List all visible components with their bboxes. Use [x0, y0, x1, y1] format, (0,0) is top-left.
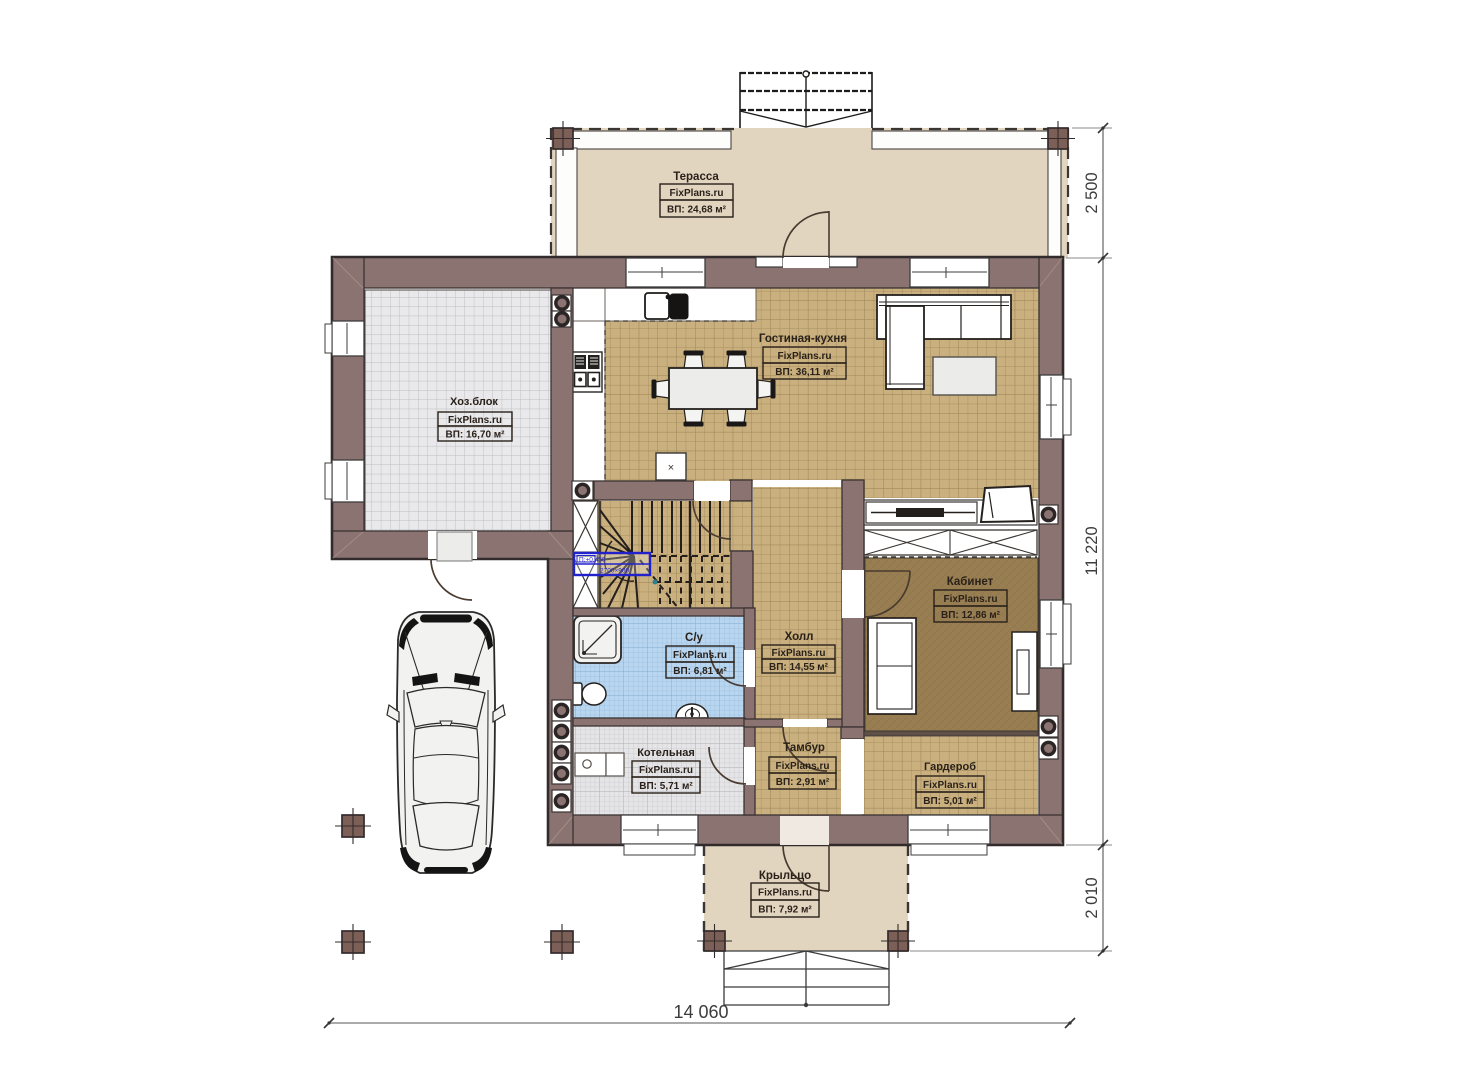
svg-text:ВП: 2,91 м²: ВП: 2,91 м² — [776, 777, 830, 788]
svg-text:FixPlans.ru: FixPlans.ru — [670, 188, 724, 199]
svg-text:ВП: 36,11 м²: ВП: 36,11 м² — [775, 367, 834, 378]
svg-text:11 220: 11 220 — [1083, 526, 1101, 575]
svg-text:Крыльцо: Крыльцо — [759, 870, 811, 882]
svg-text:FixPlans.ru: FixPlans.ru — [448, 415, 502, 426]
svg-text:Гардероб: Гардероб — [924, 761, 976, 773]
svg-text:Тамбур: Тамбур — [783, 742, 825, 754]
svg-text:14 060: 14 060 — [673, 1002, 728, 1022]
svg-text:ВП: 12,86 м²: ВП: 12,86 м² — [941, 610, 1001, 621]
svg-text:FixPlans.ru: FixPlans.ru — [944, 594, 998, 605]
svg-text:×: × — [668, 462, 674, 474]
svg-text:ВП: 5,01 м²: ВП: 5,01 м² — [923, 796, 977, 807]
svg-text:ВП: 6,81 м²: ВП: 6,81 м² — [673, 666, 727, 677]
svg-text:FixPlans.ru: FixPlans.ru — [778, 351, 832, 362]
svg-text:FixPlans.ru: FixPlans.ru — [923, 780, 977, 791]
svg-text:2 500: 2 500 — [1083, 172, 1101, 213]
svg-text:ВП: 16,70 м²: ВП: 16,70 м² — [445, 430, 505, 441]
svg-text:ВП: 7,92 м²: ВП: 7,92 м² — [758, 905, 812, 916]
svg-text:ВП: 24,68 м²: ВП: 24,68 м² — [667, 205, 727, 216]
svg-text:С/у: С/у — [685, 632, 704, 644]
svg-text:Терасса: Терасса — [673, 171, 719, 183]
svg-text:Хоз.блок: Хоз.блок — [450, 396, 498, 408]
svg-text:2700×900: 2700×900 — [600, 568, 629, 575]
svg-text:Кабинет: Кабинет — [947, 576, 994, 588]
svg-text:2 010: 2 010 — [1083, 877, 1101, 918]
svg-text:FixPlans.ru: FixPlans.ru — [639, 765, 693, 776]
svg-text:FixPlans.ru: FixPlans.ru — [673, 650, 727, 661]
svg-text:Гостиная-кухня: Гостиная-кухня — [759, 333, 847, 345]
svg-text:Котельная: Котельная — [637, 747, 695, 759]
svg-text:FixPlans.ru: FixPlans.ru — [772, 648, 826, 659]
svg-text:Холл: Холл — [785, 631, 814, 643]
svg-text:ВП: 5,71 м²: ВП: 5,71 м² — [639, 781, 693, 792]
svg-text:FixPlans.ru: FixPlans.ru — [776, 761, 830, 772]
svg-text:ВП: 14,55 м²: ВП: 14,55 м² — [769, 662, 829, 673]
svg-text:П:+0,450: П:+0,450 — [579, 557, 606, 564]
svg-text:FixPlans.ru: FixPlans.ru — [758, 888, 812, 899]
